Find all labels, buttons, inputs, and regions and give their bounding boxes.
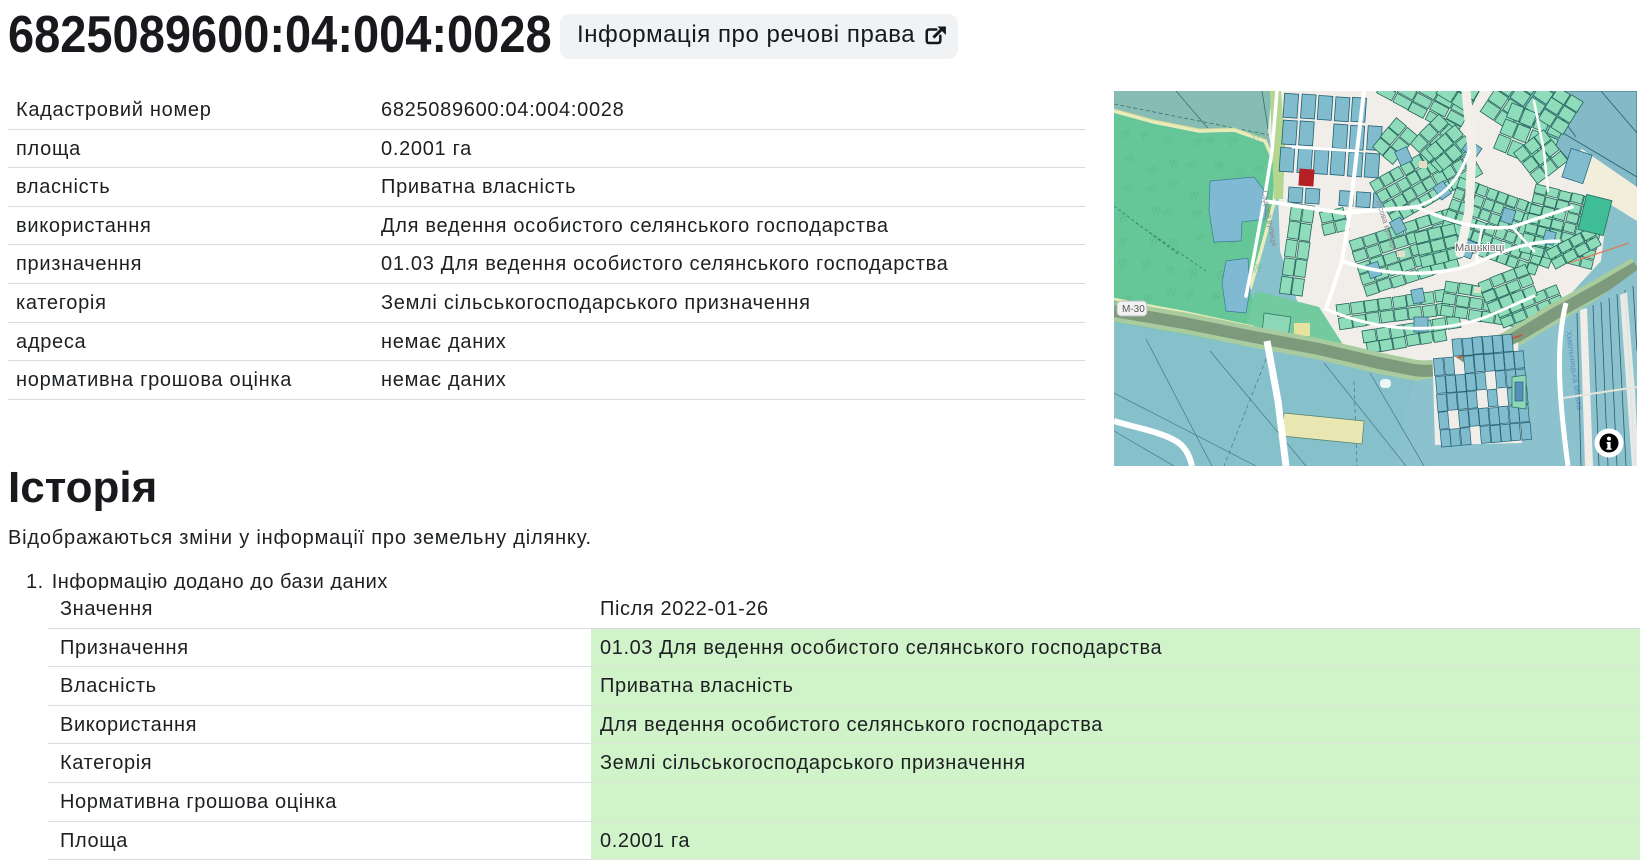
svg-text:М-30: М-30 <box>1122 304 1145 315</box>
svg-text:Мацьківці: Мацьківці <box>1455 242 1504 254</box>
